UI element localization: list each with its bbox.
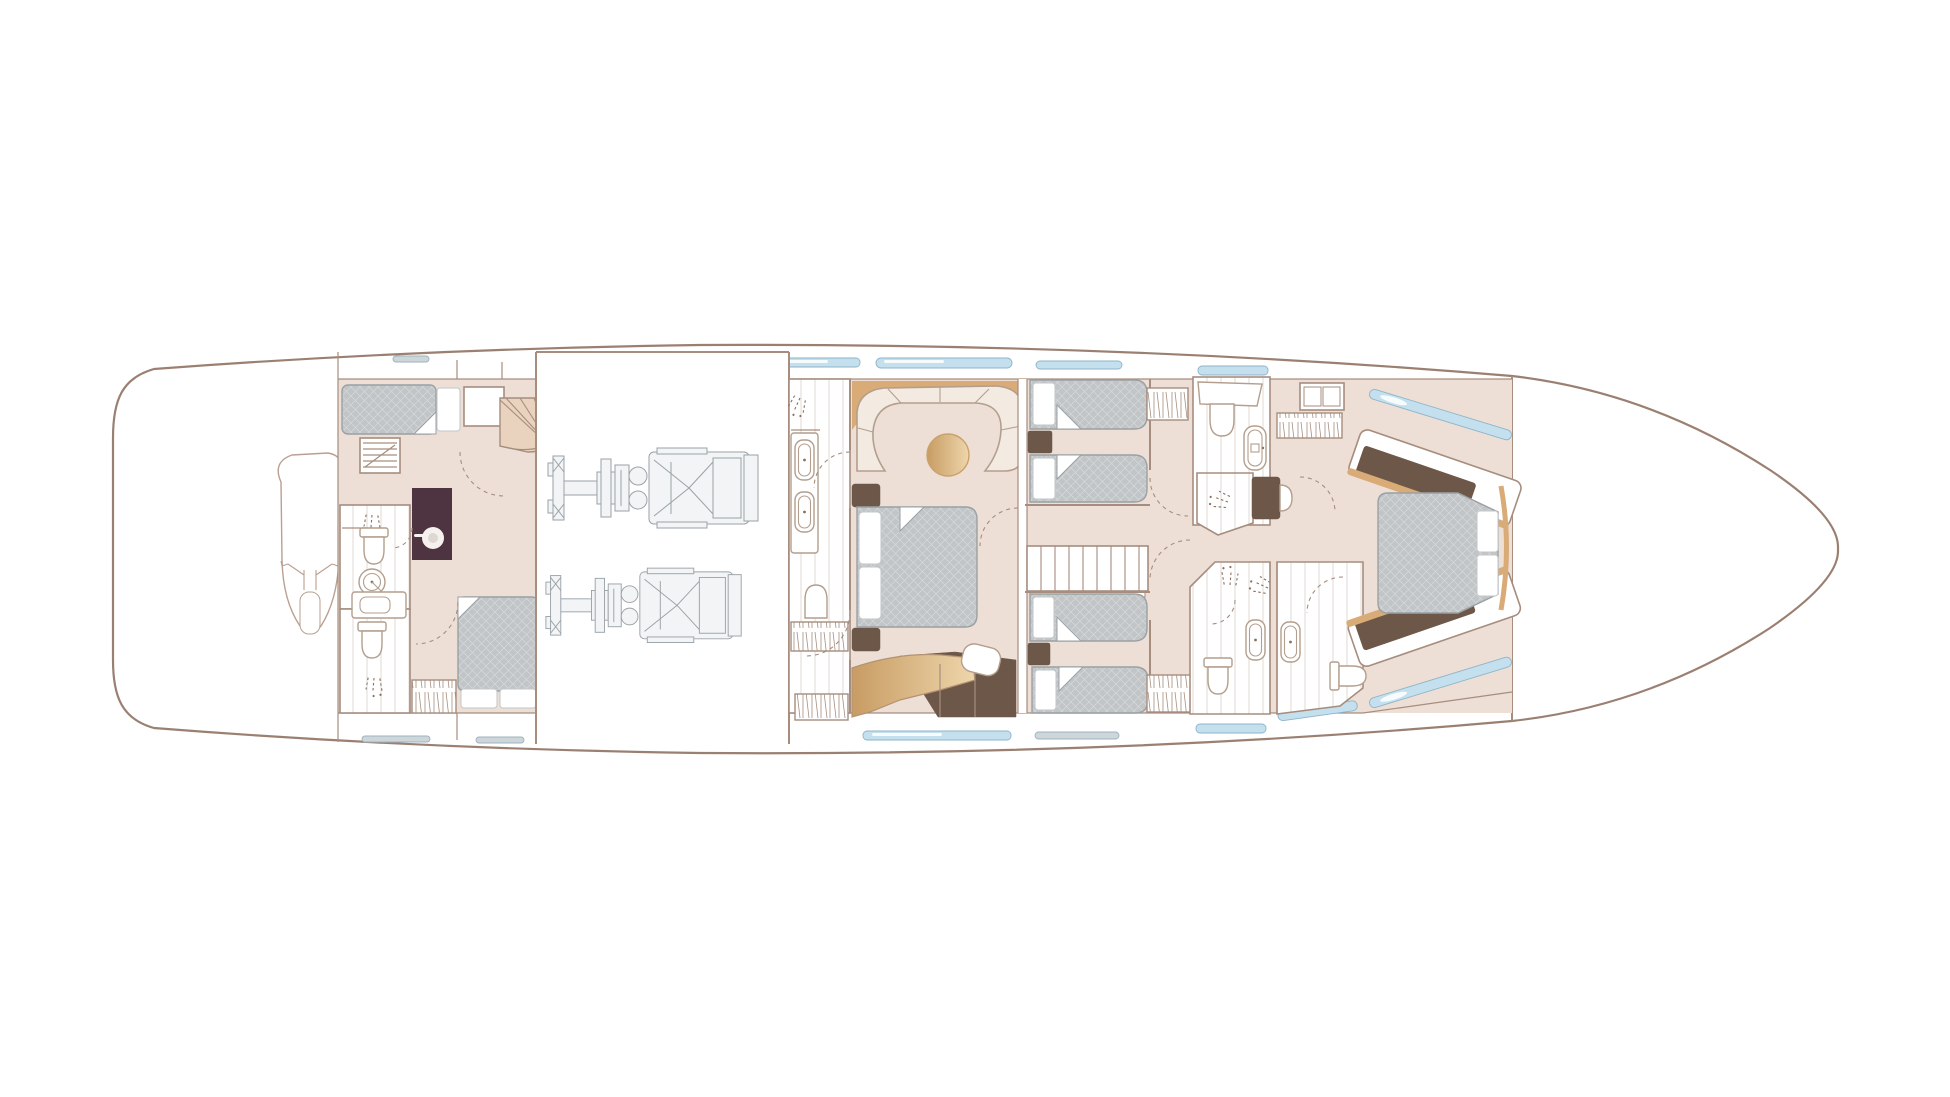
wardrobe [1277,413,1342,438]
toilet-icon [805,585,827,618]
nightstand [1028,643,1050,665]
engine-room [536,352,789,744]
master-wardrobe [795,694,848,720]
floor-plan-page [0,0,1950,1097]
crew-cabinet [464,387,504,426]
wardrobe [1147,675,1191,712]
companionway-stairs [1027,546,1148,597]
crew-wardrobe [412,680,456,713]
washing-machine [412,488,452,560]
crew-bathroom-aft [340,592,410,713]
forward-shower [1197,473,1253,535]
crew-locker [360,438,400,473]
master-wardrobe [791,622,848,651]
nightstand [852,484,880,507]
nightstand [1028,431,1052,453]
yacht-deck-plan [0,0,1950,1097]
round-table [927,434,969,476]
sink-icon [1210,404,1234,436]
wardrobe [1147,388,1188,420]
twin-bathroom [1190,562,1270,714]
bathtub [1244,426,1266,470]
master-bathroom [784,379,850,720]
forward-closet [1300,383,1344,410]
crew-bed-double [458,597,538,691]
vanity [1198,382,1262,406]
nightstand [852,628,880,651]
